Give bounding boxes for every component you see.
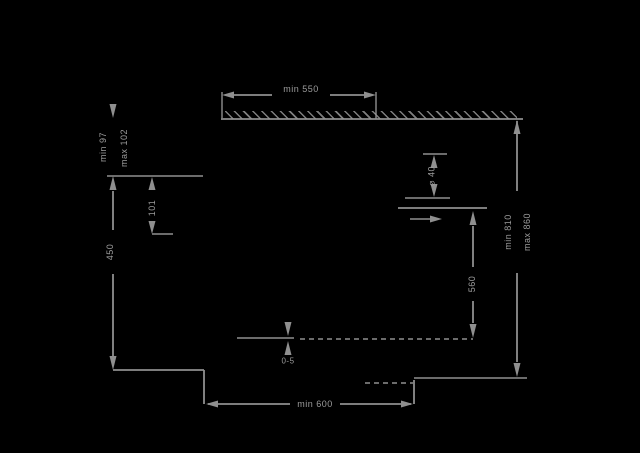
inner-depth-label: 560 <box>467 276 477 293</box>
floor-line-left <box>113 370 204 404</box>
worktop-hatching <box>225 111 517 119</box>
dimension-line-art <box>0 0 640 453</box>
upper-left-dimension <box>110 104 117 190</box>
floor-gap-label: 0-5 <box>281 357 294 366</box>
left-height-label: 450 <box>105 244 115 261</box>
right-height-dimension <box>514 120 521 377</box>
inner-depth-dimension <box>470 211 477 338</box>
right-height-max-label: max 860 <box>522 213 532 251</box>
upper-left-max-label: max 102 <box>119 129 129 167</box>
left-height-dimension <box>110 191 117 370</box>
hole-diameter-label: ⌀ 40 <box>427 166 438 186</box>
upper-offset-label: 101 <box>147 200 157 217</box>
floor-gap-dimension <box>237 322 473 355</box>
installation-drawing: min 550 min 97 max 102 101 450 ⌀ 40 560 … <box>0 0 640 453</box>
bottom-right-step <box>365 378 527 404</box>
upper-left-min-label: min 97 <box>98 132 108 162</box>
top-width-label: min 550 <box>283 84 319 94</box>
right-height-min-label: min 810 <box>503 214 513 250</box>
bottom-width-label: min 600 <box>297 399 333 409</box>
position-arrow <box>410 216 442 223</box>
